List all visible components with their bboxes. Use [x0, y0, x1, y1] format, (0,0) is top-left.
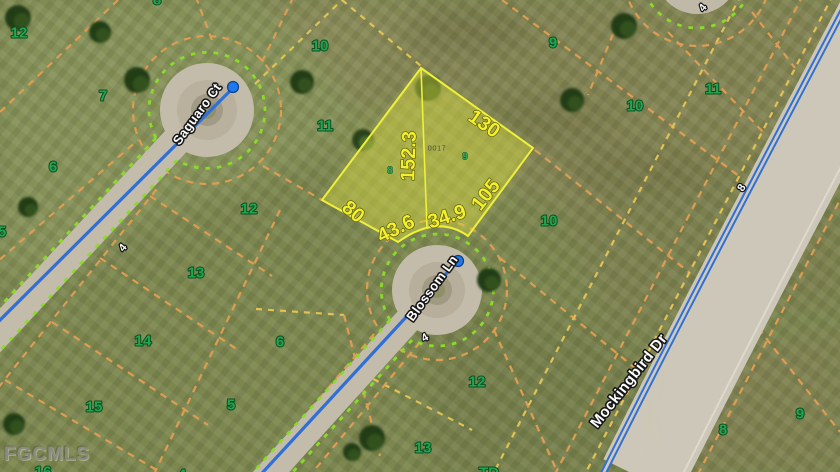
lot-number-label: 9	[796, 406, 804, 423]
tree	[3, 413, 25, 435]
tree	[611, 13, 637, 39]
tree	[124, 67, 150, 93]
lot-number-label: 9	[549, 35, 557, 52]
tree	[477, 268, 501, 292]
tree	[89, 21, 111, 43]
tree	[290, 70, 314, 94]
lot-number-label: 12	[469, 374, 486, 391]
lot-number-label: 7	[99, 88, 107, 105]
lot-number-label: 5	[227, 397, 235, 414]
lot-number-label: 13	[415, 440, 432, 457]
lot-number-label: TD	[479, 465, 499, 472]
tree	[343, 443, 361, 461]
mls-watermark: FGCMLS	[4, 444, 90, 466]
lot-number-label: 10	[312, 38, 329, 55]
lot-number-label: 10	[627, 98, 644, 115]
lot-number-label: 11	[705, 81, 721, 98]
lot-number-label: 11	[317, 118, 333, 135]
map-viewport[interactable]: 1276511121314151656410981011101213TD8989…	[0, 0, 840, 472]
lot-number-label: 15	[86, 399, 103, 416]
tree	[18, 197, 38, 217]
parcel-dimension-label: 152.3	[397, 131, 421, 182]
lot-number-label: 6	[276, 334, 284, 351]
parcel-inner-lot-number: 9	[462, 152, 468, 163]
lot-number-label: 6	[49, 159, 57, 176]
lot-number-label: 14	[135, 333, 152, 350]
tree	[359, 425, 385, 451]
parcel-inner-lot-number: 8	[387, 166, 393, 177]
parcel-id-label: 0017	[428, 144, 447, 153]
lot-number-label: 12	[11, 25, 28, 42]
tree	[560, 88, 584, 112]
lot-number-label: 4	[178, 467, 187, 472]
lot-number-label: 13	[188, 265, 205, 282]
lot-number-label: 12	[241, 201, 258, 218]
lot-number-label: 10	[541, 213, 558, 230]
route-endpoint-dot[interactable]	[228, 82, 239, 93]
lot-number-label: 8	[719, 422, 727, 439]
lot-number-label: 8	[153, 0, 161, 9]
lot-number-label: 5	[0, 224, 6, 241]
plat-map-canvas[interactable]: 1276511121314151656410981011101213TD8989…	[0, 0, 840, 472]
